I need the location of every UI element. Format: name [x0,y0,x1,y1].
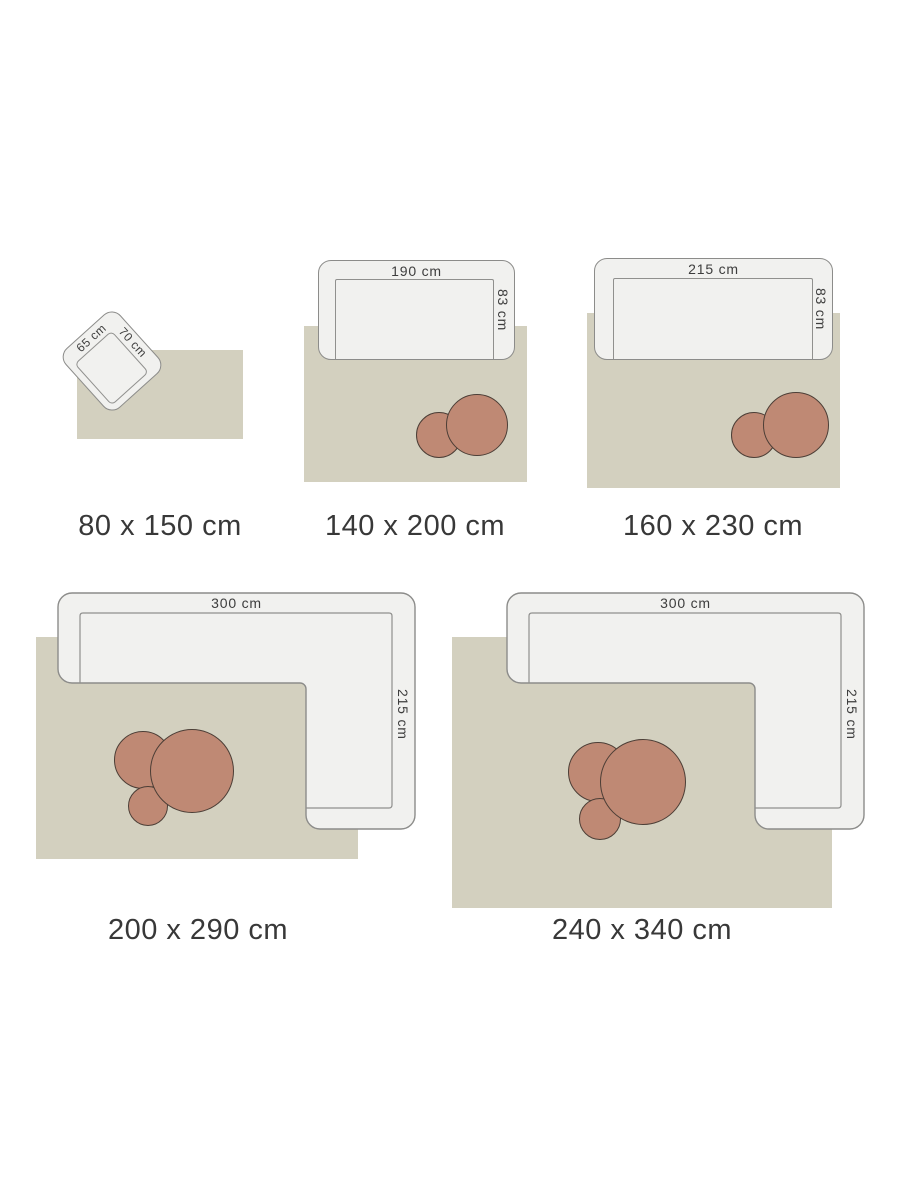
corner-sofa-depth-label: 215 cm [396,689,410,740]
sofa-illustration: 190 cm 83 cm [318,260,515,360]
corner-sofa-width-label: 300 cm [58,596,415,610]
rug-size-label: 140 x 200 cm [295,509,535,544]
rug-size-label: 240 x 340 cm [502,913,782,948]
corner-sofa-width-label: 300 cm [507,596,864,610]
sofa-seat-outline [613,278,813,359]
side-table-circle-large [763,392,829,458]
corner-sofa-illustration [507,593,864,829]
corner-sofa-depth-label: 215 cm [845,689,859,740]
side-table-circle-large [600,739,686,825]
sofa-illustration: 215 cm 83 cm [594,258,833,360]
rug-size-label: 160 x 230 cm [593,509,833,544]
corner-sofa-outline [58,593,415,829]
corner-sofa-outline [507,593,864,829]
side-table-circle-large [150,729,234,813]
rug-size-guide: 65 cm 70 cm 80 x 150 cm 190 cm 83 cm 140… [0,0,900,1200]
rug-size-label: 200 x 290 cm [58,913,338,948]
sofa-seat-outline [335,279,494,359]
sofa-width-label: 190 cm [319,264,514,278]
sofa-depth-label: 83 cm [496,289,510,331]
sofa-width-label: 215 cm [595,262,832,276]
sofa-depth-label: 83 cm [814,288,828,330]
corner-sofa-illustration [58,593,415,829]
rug-size-label: 80 x 150 cm [40,509,280,544]
side-table-circle-large [446,394,508,456]
